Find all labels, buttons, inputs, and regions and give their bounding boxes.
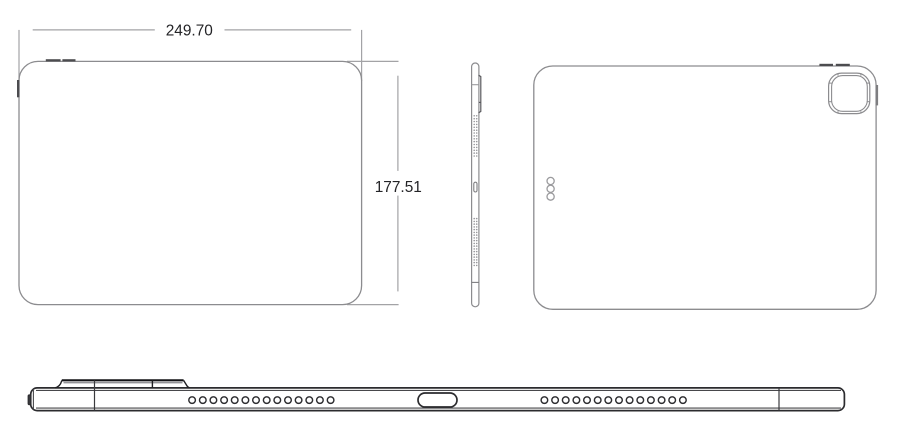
svg-text:177.51: 177.51 <box>375 179 422 196</box>
svg-text:249.70: 249.70 <box>166 23 213 40</box>
